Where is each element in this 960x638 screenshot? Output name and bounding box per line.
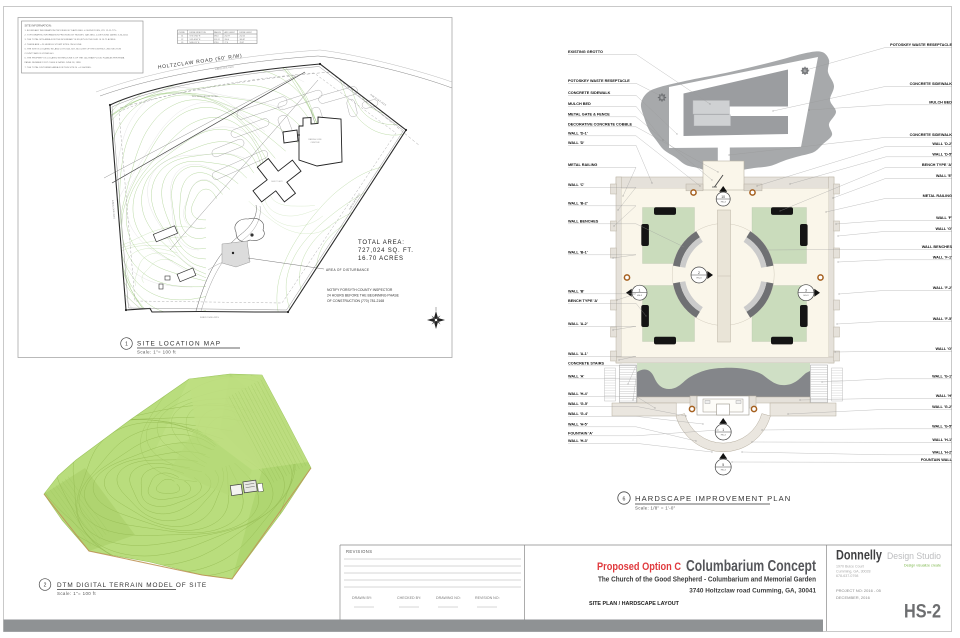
svg-text:C1: C1 (181, 36, 183, 38)
svg-text:515.74: 515.74 (214, 39, 220, 41)
svg-text:EXISTING GROTTO: EXISTING GROTTO (568, 50, 603, 54)
svg-text:C2: C2 (181, 39, 183, 41)
svg-text:MULCH BED: MULCH BED (929, 101, 952, 105)
svg-text:WALL 'F-2': WALL 'F-2' (933, 286, 952, 290)
svg-text:N 88 0 57' E: N 88 0 57' E (190, 42, 201, 44)
svg-text:10: 10 (721, 195, 725, 199)
svg-text:HS-3: HS-3 (804, 295, 810, 297)
svg-text:WALL 'G-5': WALL 'G-5' (932, 425, 952, 429)
svg-text:CURVE: CURVE (179, 32, 186, 34)
svg-text:PARISH LIFE: PARISH LIFE (308, 138, 322, 141)
svg-text:16.70 ACRES: 16.70 ACRES (358, 256, 404, 262)
svg-text:METAL RAILING: METAL RAILING (923, 194, 952, 198)
svg-text:RADIUS: RADIUS (214, 31, 222, 34)
svg-text:N 88 12 34 E 412.5: N 88 12 34 E 412.5 (200, 317, 220, 319)
svg-text:WALL 'H-5': WALL 'H-5' (568, 423, 588, 427)
svg-text:R/W DEDICATION DETAIL: R/W DEDICATION DETAIL (192, 95, 219, 98)
svg-text:ARC LENGT: ARC LENGT (225, 31, 236, 34)
svg-text:CONCRETE STAIRS: CONCRETE STAIRS (568, 362, 604, 366)
svg-text:24 HOURS BEFORE THE BEGINNING: 24 HOURS BEFORE THE BEGINNING PHASE (327, 294, 400, 298)
svg-text:WALL 'A': WALL 'A' (568, 375, 584, 379)
svg-text:WALL 'G-2': WALL 'G-2' (932, 405, 952, 409)
svg-text:WALL BENCHES: WALL BENCHES (568, 220, 599, 224)
svg-text:WALL 'D': WALL 'D' (568, 141, 584, 145)
svg-text:HS-3: HS-3 (637, 295, 643, 297)
svg-text:BENCH TYPE 'A': BENCH TYPE 'A' (922, 163, 952, 167)
svg-text:OF CONSTRUCTION (770) 781-2168: OF CONSTRUCTION (770) 781-2168 (327, 299, 384, 303)
svg-text:WALL 'H-1': WALL 'H-1' (932, 438, 952, 442)
svg-text:WALL 'H-3': WALL 'H-3' (568, 439, 588, 443)
svg-text:WALL 'G': WALL 'G' (936, 347, 953, 351)
svg-text:595.0: 595.0 (214, 36, 219, 38)
svg-text:Scale: 1"= 100 ft: Scale: 1"= 100 ft (137, 350, 176, 355)
svg-text:WALL 'G-5': WALL 'G-5' (568, 402, 588, 406)
svg-text:6. THE PROPERTY IS LOCATED WIT: 6. THE PROPERTY IS LOCATED WITHIN ZONE X… (25, 57, 125, 60)
svg-text:HS-3: HS-3 (721, 469, 727, 471)
svg-text:WALL 'G': WALL 'G' (936, 227, 953, 231)
svg-text:COUNTY AND IS ZONED A-1.: COUNTY AND IS ZONED A-1. (25, 52, 55, 55)
svg-text:DECORATIVE CONCRETE COBBLE: DECORATIVE CONCRETE COBBLE (568, 123, 633, 127)
svg-text:2: 2 (698, 271, 700, 275)
svg-text:CENTER: CENTER (311, 142, 320, 144)
svg-text:PANEL NUMBER 13117 C0060 E D: PANEL NUMBER 13117 C0060 E DATED JUNE 18… (25, 61, 82, 64)
svg-text:WALL 'C': WALL 'C' (568, 183, 584, 187)
svg-text:CURVE LENGT: CURVE LENGT (239, 32, 253, 34)
svg-text:POTOSKEY WASTE RESEPTACLE: POTOSKEY WASTE RESEPTACLE (890, 43, 952, 47)
svg-text:NOTIFY FORSYTH COUNTY INSPECTO: NOTIFY FORSYTH COUNTY INSPECTOR (327, 288, 393, 292)
svg-text:FOUNTAIN WALL: FOUNTAIN WALL (921, 458, 953, 462)
svg-text:78.97: 78.97 (240, 42, 245, 44)
svg-text:7. THE TOTAL DISTURBED AREA FO: 7. THE TOTAL DISTURBED AREA FOR THIS SIT… (25, 66, 92, 69)
svg-text:CONCRETE SIDEWALK: CONCRETE SIDEWALK (910, 82, 953, 86)
svg-text:CHECKED BY:: CHECKED BY: (397, 596, 421, 600)
svg-text:WALL BENCHES: WALL BENCHES (922, 245, 953, 249)
svg-text:6: 6 (623, 496, 626, 502)
svg-text:3740 Holtzclaw road Cumming,: 3740 Holtzclaw road Cumming, GA, 30041 (689, 588, 816, 595)
svg-text:5: 5 (722, 463, 724, 467)
svg-text:HS-2: HS-2 (904, 602, 941, 623)
svg-text:WALL 'H-4': WALL 'H-4' (568, 392, 588, 396)
svg-text:310.4: 310.4 (225, 39, 230, 41)
svg-text:DECEMBER, 2016: DECEMBER, 2016 (836, 595, 871, 600)
svg-text:The Church of the Good Shepher: The Church of the Good Shepherd - Columb… (598, 577, 816, 584)
svg-text:WALL 'G-4': WALL 'G-4' (568, 412, 588, 416)
svg-text:WALL 'D-1': WALL 'D-1' (568, 132, 588, 136)
svg-text:Design Studio: Design Studio (887, 551, 941, 562)
svg-text:5. THE SITE IS LOCATED IN LAND: 5. THE SITE IS LOCATED IN LAND LOTS 844,… (25, 47, 122, 50)
svg-text:WALL 'F': WALL 'F' (936, 216, 952, 220)
svg-text:WALL 'F-1': WALL 'F-1' (933, 256, 952, 260)
svg-text:METAL RAILING: METAL RAILING (568, 163, 597, 167)
svg-text:PROJECT NO: 2016 - 05: PROJECT NO: 2016 - 05 (836, 588, 882, 593)
svg-text:CURVE DIRECTION: CURVE DIRECTION (189, 32, 206, 34)
svg-text:WALL 'B': WALL 'B' (568, 290, 584, 294)
svg-text:HS-3: HS-3 (721, 434, 727, 436)
svg-text:212.77: 212.77 (225, 36, 231, 38)
svg-text:573.6: 573.6 (214, 42, 219, 44)
svg-text:WALL 'D-5': WALL 'D-5' (932, 153, 952, 157)
svg-text:Design visualize create: Design visualize create (904, 564, 941, 568)
svg-text:WALL 'A-1': WALL 'A-1' (568, 352, 588, 356)
svg-text:WALL 'H-2': WALL 'H-2' (932, 451, 952, 455)
svg-text:Scale: 1/8" = 1'-0": Scale: 1/8" = 1'-0" (635, 506, 676, 511)
svg-text:HS-3: HS-3 (697, 277, 703, 279)
svg-text:WALL 'B-1': WALL 'B-1' (568, 251, 588, 255)
svg-text:S 74 57'41" E: S 74 57'41" E (190, 36, 202, 38)
svg-text:1: 1 (639, 289, 641, 293)
svg-text:4. THERE ARE +-26 HURDLE STUMP: 4. THERE ARE +-26 HURDLE STUMP SITES ON … (25, 43, 83, 46)
svg-text:C3: C3 (181, 42, 183, 44)
svg-text:CONCRETE SIDEWALK: CONCRETE SIDEWALK (910, 133, 953, 137)
svg-text:WALL 'H': WALL 'H' (936, 394, 952, 398)
svg-text:DTM DIGITAL TERRAIN MODEL OF S: DTM DIGITAL TERRAIN MODEL OF SITE (57, 582, 207, 589)
svg-text:S 85 40'45" E: S 85 40'45" E (190, 39, 202, 41)
svg-text:SITE PLAN / HARDSCAPE LAYOUT: SITE PLAN / HARDSCAPE LAYOUT (589, 601, 680, 607)
svg-text:TOTAL AREA:: TOTAL AREA: (358, 240, 405, 246)
svg-text:SANCTUARY: SANCTUARY (271, 180, 283, 183)
svg-text:WALL 'E': WALL 'E' (936, 174, 952, 178)
svg-text:WALL 'G-1': WALL 'G-1' (932, 375, 952, 379)
svg-text:AREA OF DISTURBANCE: AREA OF DISTURBANCE (326, 268, 369, 272)
svg-text:Cumming, GA, 30028: Cumming, GA, 30028 (836, 569, 871, 573)
svg-text:77 6: 77 6 (225, 42, 229, 44)
svg-text:HARDSCAPE IMPROVEMENT PLAN: HARDSCAPE IMPROVEMENT PLAN (635, 494, 791, 503)
svg-text:678-637-0798: 678-637-0798 (836, 574, 858, 578)
svg-text:WALL 'B-2': WALL 'B-2' (568, 202, 588, 206)
svg-text:Columbarium Concept: Columbarium Concept (686, 558, 816, 575)
svg-text:REVISION NO:: REVISION NO: (475, 596, 500, 600)
svg-text:1: 1 (125, 342, 128, 348)
svg-text:Donnelly: Donnelly (836, 548, 882, 563)
svg-text:727,024 SQ. FT.: 727,024 SQ. FT. (358, 248, 414, 254)
svg-text:CONCRETE SIDEWALK: CONCRETE SIDEWALK (568, 91, 611, 95)
svg-text:HS-3: HS-3 (721, 201, 727, 203)
svg-text:1: 1 (722, 428, 724, 432)
svg-text:POTOSKEY WASTE RESEPTACLE: POTOSKEY WASTE RESEPTACLE (568, 79, 630, 83)
svg-text:3: 3 (805, 289, 807, 293)
svg-text:WALL 'D-2': WALL 'D-2' (932, 142, 952, 146)
svg-text:Proposed Option C: Proposed Option C (597, 561, 681, 573)
svg-text:1. BOUNDARY INFORMATION PROVID: 1. BOUNDARY INFORMATION PROVIDED BY DAVI… (25, 29, 118, 32)
svg-text:1970 Buice Court: 1970 Buice Court (836, 565, 864, 569)
svg-text:FOUNTAIN 'A': FOUNTAIN 'A' (568, 432, 593, 436)
svg-text:Scale: 1"= 100 ft: Scale: 1"= 100 ft (57, 591, 96, 596)
svg-text:MULCH BED: MULCH BED (568, 102, 591, 106)
svg-text:SITE INFORMATION:: SITE INFORMATION: (25, 24, 52, 28)
svg-text:309.87: 309.87 (240, 39, 246, 41)
svg-text:SITE LOCATION MAP: SITE LOCATION MAP (137, 341, 221, 348)
svg-text:REVISIONS: REVISIONS (346, 549, 372, 554)
svg-text:3. THE TOTAL SITE AREA FOR THE: 3. THE TOTAL SITE AREA FOR THE BOUNDARY … (25, 38, 117, 41)
svg-text:METAL GATE & FENCE: METAL GATE & FENCE (568, 113, 610, 117)
svg-text:2. TOPOGRAPHIC INFORMATION PRO: 2. TOPOGRAPHIC INFORMATION PROVIDED BY H… (25, 34, 129, 37)
svg-text:BENCH TYPE 'A': BENCH TYPE 'A' (568, 299, 598, 303)
svg-text:WALL 'F-5': WALL 'F-5' (933, 317, 952, 321)
svg-text:212.25: 212.25 (240, 36, 246, 38)
svg-text:DRAWN BY:: DRAWN BY: (352, 596, 372, 600)
svg-text:DRAWING NO:: DRAWING NO: (436, 596, 461, 600)
svg-text:2: 2 (44, 583, 47, 589)
svg-text:WALL 'A-2': WALL 'A-2' (568, 322, 588, 326)
